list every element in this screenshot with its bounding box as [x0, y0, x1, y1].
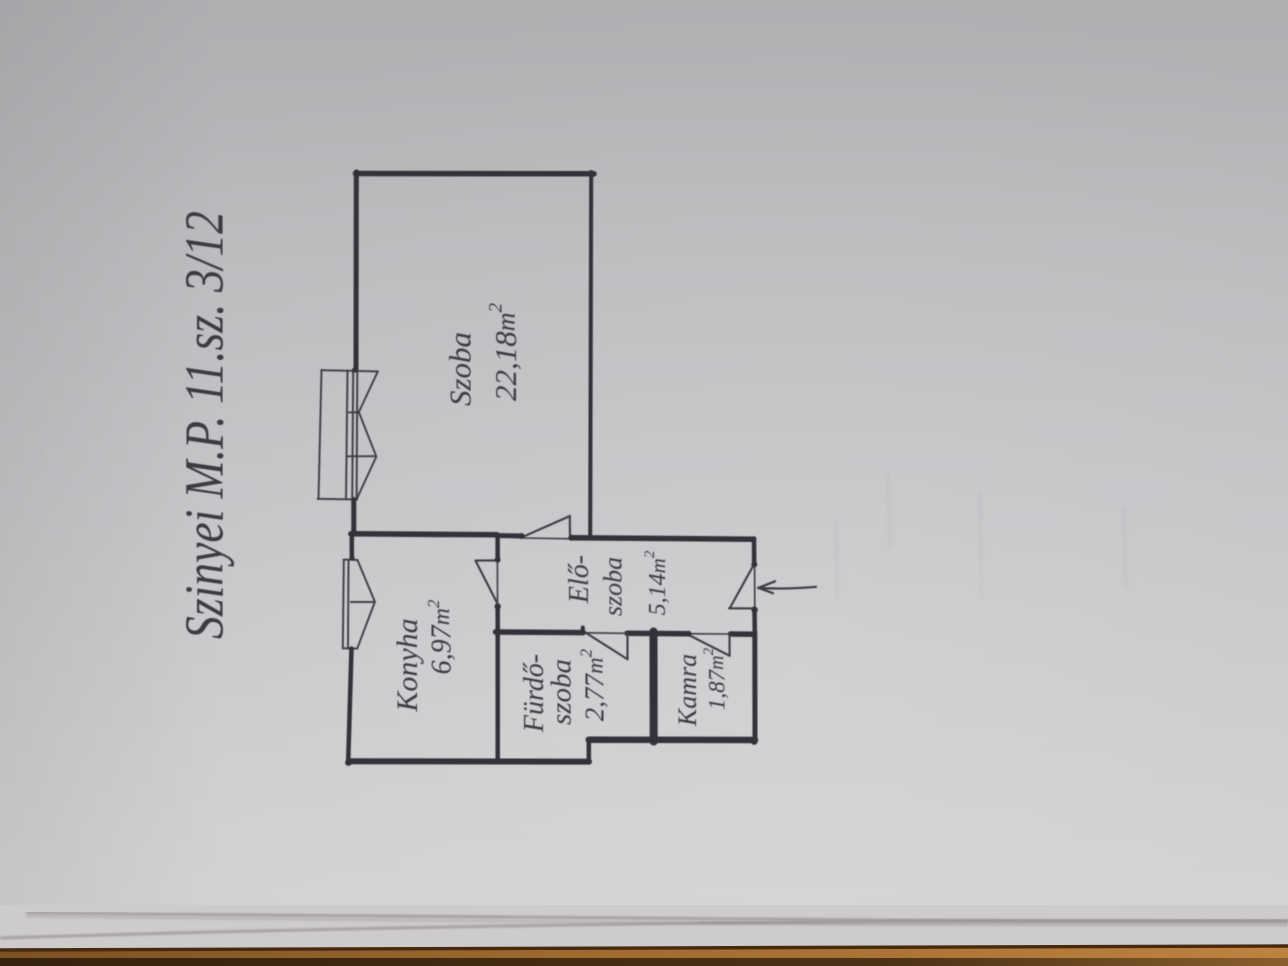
svg-text:6,97m2: 6,97m2: [424, 599, 458, 674]
svg-text:Szinyei M.P. 11.sz. 3/12: Szinyei M.P. 11.sz. 3/12: [174, 211, 235, 639]
svg-text:Kamra: Kamra: [673, 654, 702, 727]
svg-text:Konyha: Konyha: [391, 618, 424, 712]
svg-text:Elő-: Elő-: [564, 555, 595, 604]
svg-text:Szoba: Szoba: [443, 332, 478, 406]
svg-text:2,77m2: 2,77m2: [576, 648, 610, 721]
svg-text:5,14m2: 5,14m2: [642, 550, 671, 615]
svg-text:1,87m2: 1,87m2: [701, 647, 730, 710]
svg-text:szoba: szoba: [546, 659, 578, 725]
svg-text:22,18m2: 22,18m2: [485, 302, 523, 401]
svg-text:szoba: szoba: [599, 557, 628, 616]
